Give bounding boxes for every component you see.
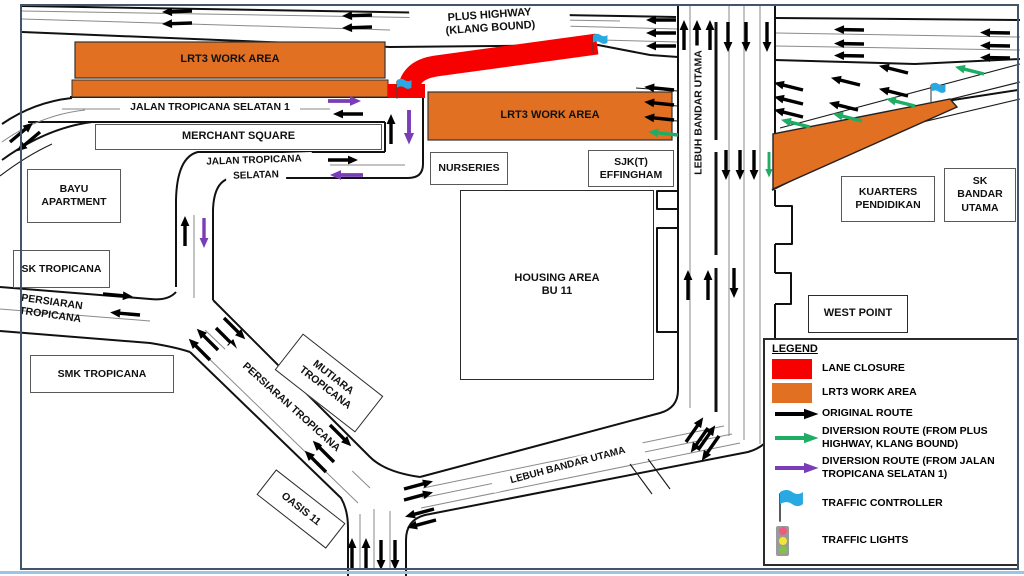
jalan-tropicana-selatan-1-label: JALAN TROPICANA SELATAN 1 [120,100,300,114]
slide-border-accent-line [0,571,1024,574]
work-area-swatch-icon [772,383,812,403]
black-arrow-icon [772,407,822,421]
lane-closure-swatch-icon [772,359,812,379]
bayu-apartment-box: BAYU APARTMENT [27,169,121,223]
kuarters-pendidikan-box: KUARTERS PENDIDIKAN [841,176,935,222]
traffic-light-icon [776,526,789,556]
nurseries-box: NURSERIES [430,152,508,185]
legend-title: LEGEND [772,343,1010,355]
sjkt-effingham-box: SJK(T) EFFINGHAM [588,150,674,187]
legend-item: LANE CLOSURE [772,359,1010,379]
traffic-diversion-map: PLUS HIGHWAY (KLANG BOUND) LRT3 WORK ARE… [0,0,1024,576]
legend-item: DIVERSION ROUTE (FROM JALAN TROPICANA SE… [772,455,1010,481]
sk-tropicana-box: SK TROPICANA [13,250,110,288]
legend-item: LRT3 WORK AREA [772,383,1010,403]
green-arrow-icon [772,431,822,445]
legend-item: DIVERSION ROUTE (FROM PLUS HIGHWAY, KLAN… [772,425,1010,451]
lebuh-bandar-utama-vertical-label: LEBUH BANDAR UTAMA [692,46,707,180]
west-point-box: WEST POINT [808,295,908,333]
selatan-label: SELATAN [226,168,286,183]
legend: LEGEND LANE CLOSURE LRT3 WORK AREA ORIGI… [763,338,1019,566]
legend-item: TRAFFIC LIGHTS [772,526,1010,556]
legend-item: TRAFFIC CONTROLLER [772,486,1010,522]
legend-item: ORIGINAL ROUTE [772,407,1010,421]
lrt3-work-area-mid-label: LRT3 WORK AREA [428,92,672,140]
smk-tropicana-box: SMK TROPICANA [30,355,174,393]
lane-closure-band [388,44,597,98]
traffic-controller-flag-icon [772,486,822,522]
sk-bandar-utama-box: SK BANDAR UTAMA [944,168,1016,222]
housing-area-bu11-box: HOUSING AREA BU 11 [460,190,654,380]
merchant-square-box: MERCHANT SQUARE [95,124,382,150]
lrt3-work-area-left-label: LRT3 WORK AREA [75,42,385,78]
purple-arrow-icon [772,461,822,475]
